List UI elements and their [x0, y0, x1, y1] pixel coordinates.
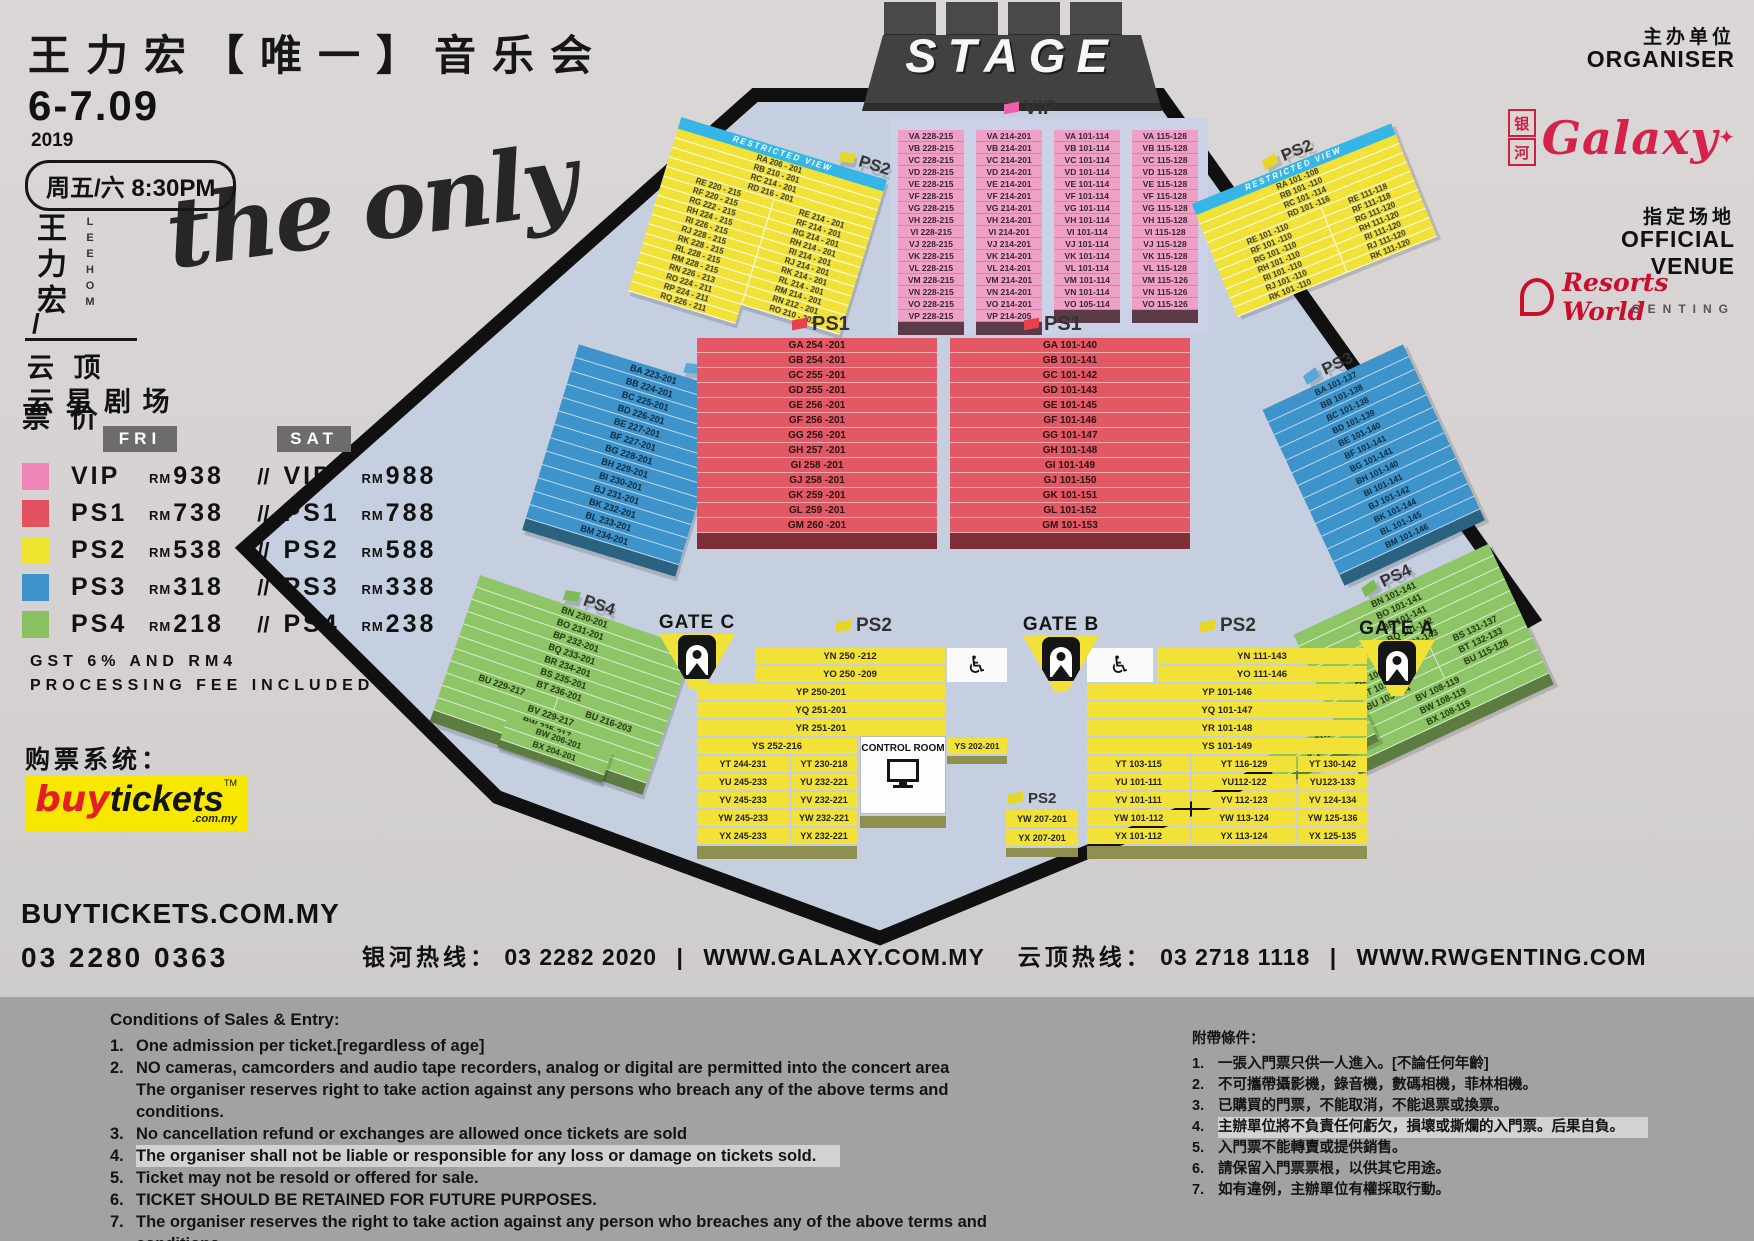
seat-row: VE 214-201	[976, 178, 1042, 190]
section-label-floating: PS1	[1024, 314, 1082, 334]
seat-cell: GB 254 -201	[697, 353, 937, 368]
seat-cell: VD 115-128	[1132, 166, 1198, 178]
seat-row: GL 101-152	[950, 503, 1190, 518]
seat-row: GG 256 -201	[697, 428, 937, 443]
seat-row: GJ 258 -201	[697, 473, 937, 488]
seat-row: GH 257 -201	[697, 443, 937, 458]
seat-cell: YT 103-115	[1087, 756, 1190, 772]
seat-cell: YS 202-201	[947, 738, 1007, 754]
seat-row: GI 101-149	[950, 458, 1190, 473]
seat-cell: VI 228-215	[898, 226, 964, 238]
condition-item: 1.One admission per ticket.[regardless o…	[110, 1035, 1010, 1057]
seat-row: VD 115-128	[1132, 166, 1198, 178]
seat-cell: YW 245-233	[697, 810, 789, 826]
seat-row: GB 254 -201	[697, 353, 937, 368]
seat-cell: VD 228-215	[898, 166, 964, 178]
seat-row: VB 101-114	[1054, 142, 1120, 154]
seat-row: GC 101-142	[950, 368, 1190, 383]
seat-cell: VF 101-114	[1054, 190, 1120, 202]
section-depth-strip	[1132, 310, 1198, 323]
seat-cell: YT 116-129	[1192, 756, 1296, 772]
seat-cell: YP 101-146	[1087, 684, 1367, 700]
seat-cell: VE 228-215	[898, 178, 964, 190]
condition-item: 6.TICKET SHOULD BE RETAINED FOR FUTURE P…	[110, 1189, 1010, 1211]
seat-row: VH 214-201	[976, 214, 1042, 226]
gate-door-icon	[1378, 641, 1416, 685]
gate-marker	[1023, 636, 1099, 692]
section-depth-strip	[898, 322, 964, 335]
gate: GATE B	[1016, 614, 1106, 692]
seat-cell: VN 214-201	[976, 286, 1042, 298]
seat-cell: VB 101-114	[1054, 142, 1120, 154]
section-label: PS2	[1008, 788, 1056, 808]
vip-col-3: VA 101-114VB 101-114VC 101-114VD 101-114…	[1054, 130, 1120, 323]
conditions-english: Conditions of Sales & Entry: 1.One admis…	[110, 1009, 1010, 1241]
seat-cell: VM 228-215	[898, 274, 964, 286]
gate-label: GATE B	[1016, 614, 1106, 636]
seat-cell: VC 214-201	[976, 154, 1042, 166]
section-label: PS2	[836, 616, 892, 636]
seat-cell: VG 115-128	[1132, 202, 1198, 214]
seat-cell: GE 101-145	[950, 398, 1190, 413]
gate-door-icon	[678, 635, 716, 679]
seat-cell: GL 101-152	[950, 503, 1190, 518]
seat-cell: VP 228-215	[898, 310, 964, 322]
seat-row: VK 115-128	[1132, 250, 1198, 262]
seat-row: VM 214-201	[976, 274, 1042, 286]
section-label-text: VIP	[1024, 97, 1056, 120]
seat-row: GE 101-145	[950, 398, 1190, 413]
seat-cell: VI 101-114	[1054, 226, 1120, 238]
seat-row: VI 214-201	[976, 226, 1042, 238]
seat-cell: GD 255 -201	[697, 383, 937, 398]
seat-cell: YX 245-233	[697, 828, 789, 844]
seat-cell: VK 228-215	[898, 250, 964, 262]
ps1-right: GA 101-140GB 101-141GC 101-142GD 101-143…	[950, 338, 1190, 549]
seat-cell: VN 228-215	[898, 286, 964, 298]
section-flag-icon	[838, 152, 856, 163]
seat-cell: GM 260 -201	[697, 518, 937, 533]
gate-arch-icon	[1050, 647, 1072, 677]
section-label: PS1	[1024, 314, 1082, 334]
seat-cell: VM 101-114	[1054, 274, 1120, 286]
seat-row: GF 256 -201	[697, 413, 937, 428]
seat-row: GA 254 -201	[697, 338, 937, 353]
seat-row: VC 101-114	[1054, 154, 1120, 166]
seat-row: VA 228-215	[898, 130, 964, 142]
seat-row: VF 101-114	[1054, 190, 1120, 202]
seat-cell: YT 130-142	[1298, 756, 1367, 772]
condition-item: 4.The organiser shall not be liable or r…	[110, 1145, 1010, 1167]
seat-row: VM 228-215	[898, 274, 964, 286]
seat-row: VO 228-215	[898, 298, 964, 310]
seat-cell: VO 115-126	[1132, 298, 1198, 310]
seat-cell: GK 259 -201	[697, 488, 937, 503]
seat-row: VI 101-114	[1054, 226, 1120, 238]
seat-cell: YN 111-143	[1157, 648, 1367, 664]
seat-cell: YN 250 -212	[755, 648, 945, 664]
section-flag-icon	[1362, 579, 1379, 597]
seat-row: VN 228-215	[898, 286, 964, 298]
section-flag-icon	[1008, 792, 1023, 805]
seat-cell: YT 244-231	[697, 756, 789, 772]
seat-cell: VG 101-114	[1054, 202, 1120, 214]
seat-row: VO 115-126	[1132, 298, 1198, 310]
condition-item: 7.The organiser reserves the right to ta…	[110, 1211, 1010, 1241]
seat-cell: YV 124-134	[1298, 792, 1367, 808]
seat-cell: VK 101-114	[1054, 250, 1120, 262]
seat-cell: GF 101-146	[950, 413, 1190, 428]
seat-row: VN 101-114	[1054, 286, 1120, 298]
seat-cell: YV 112-123	[1192, 792, 1296, 808]
seat-row: GB 101-141	[950, 353, 1190, 368]
seat-cell: VB 214-201	[976, 142, 1042, 154]
seat-cell: GL 259 -201	[697, 503, 937, 518]
gate-marker	[1359, 640, 1435, 696]
condition-item: 6.請保留入門票票根，以供其它用途。	[1192, 1159, 1732, 1180]
section-label: VIP	[1004, 98, 1056, 118]
seat-row: GD 101-143	[950, 383, 1190, 398]
seat-cell: VH 228-215	[898, 214, 964, 226]
section-depth-strip	[697, 846, 857, 859]
gate-arch-icon	[686, 645, 708, 675]
seat-cell: YX 125-135	[1298, 828, 1367, 844]
seat-row: VJ 228-215	[898, 238, 964, 250]
seat-cell: GA 101-140	[950, 338, 1190, 353]
seat-row: VD 101-114	[1054, 166, 1120, 178]
section-depth-strip	[860, 816, 946, 828]
seat-row: VI 115-128	[1132, 226, 1198, 238]
gate-arch-icon	[1386, 651, 1408, 681]
seat-cell: YU112-122	[1192, 774, 1296, 790]
section-label: PS2	[1200, 616, 1256, 636]
monitor-base	[893, 785, 913, 788]
seat-cell: GK 101-151	[950, 488, 1190, 503]
seat-cell: VK 115-128	[1132, 250, 1198, 262]
seat-cell: YW 232-221	[791, 810, 857, 826]
seat-row: VA 115-128	[1132, 130, 1198, 142]
section-label: PS1	[792, 314, 850, 334]
control-room-label: CONTROL ROOM	[861, 742, 945, 755]
ps2-restricted-left: PS2RESTRICTED VIEWRA 206 - 201RB 210 - 2…	[628, 98, 893, 354]
seat-cell: VF 214-201	[976, 190, 1042, 202]
conditions-band: Conditions of Sales & Entry: 1.One admis…	[0, 997, 1754, 1241]
seat-cell: VA 228-215	[898, 130, 964, 142]
section-label-floating: PS2	[1200, 616, 1256, 636]
seat-row: VG 115-128	[1132, 202, 1198, 214]
condition-item: 7.如有違例，主辦單位有權採取行動。	[1192, 1180, 1732, 1201]
seat-row: VE 101-114	[1054, 178, 1120, 190]
section-flag-icon	[836, 620, 851, 633]
seat-cell: VM 214-201	[976, 274, 1042, 286]
seat-row: GE 256 -201	[697, 398, 937, 413]
section-label-floating: VIP	[1004, 98, 1056, 118]
seat-row: VB 115-128	[1132, 142, 1198, 154]
seat-cell: VC 115-128	[1132, 154, 1198, 166]
seat-row: VC 214-201	[976, 154, 1042, 166]
seat-row: VK 228-215	[898, 250, 964, 262]
seat-cell: VD 214-201	[976, 166, 1042, 178]
section-label-floating: PS2	[1008, 788, 1056, 808]
seat-cell: YX 207-201	[1006, 829, 1078, 846]
seat-row: VB 214-201	[976, 142, 1042, 154]
seat-row: GL 259 -201	[697, 503, 937, 518]
vip-col-2: VA 214-201VB 214-201VC 214-201VD 214-201…	[976, 130, 1042, 335]
section-flag-icon	[1024, 318, 1039, 331]
seat-cell: GI 258 -201	[697, 458, 937, 473]
vip-col-4: VA 115-128VB 115-128VC 115-128VD 115-128…	[1132, 130, 1198, 323]
seat-cell: VL 115-128	[1132, 262, 1198, 274]
seat-cell: VE 214-201	[976, 178, 1042, 190]
seat-cell: VH 115-128	[1132, 214, 1198, 226]
seat-cell: YX 101-112	[1087, 828, 1190, 844]
seat-row: VD 214-201	[976, 166, 1042, 178]
seat-cell: YU 232-221	[791, 774, 857, 790]
section-label-text: PS1	[1044, 313, 1082, 336]
seat-row: VJ 101-114	[1054, 238, 1120, 250]
seat-cell: YO 250 -209	[755, 666, 945, 682]
gate-label: GATE A	[1352, 618, 1442, 640]
seat-cell: YR 251-201	[697, 720, 945, 736]
seat-cell: VL 101-114	[1054, 262, 1120, 274]
seat-cell: GG 256 -201	[697, 428, 937, 443]
section-flag-icon	[563, 590, 581, 602]
seat-cell: GF 256 -201	[697, 413, 937, 428]
seat-cell: GG 101-147	[950, 428, 1190, 443]
section-label-floating: PS1	[792, 314, 850, 334]
seat-cell: VO 105-114	[1054, 298, 1120, 310]
seat-cell: VA 214-201	[976, 130, 1042, 142]
section-label-text: PS2	[1028, 790, 1056, 807]
seat-row: GM 260 -201	[697, 518, 937, 533]
section-depth-strip	[1006, 848, 1078, 857]
seat-cell: GH 101-148	[950, 443, 1190, 458]
wheelchair-icon: ♿	[1109, 651, 1131, 680]
seat-row: VE 228-215	[898, 178, 964, 190]
seat-cell: YS 252-216	[697, 738, 857, 754]
seat-cell: YS 101-149	[1087, 738, 1367, 754]
seat-row: VD 228-215	[898, 166, 964, 178]
seat-cell: VI 115-128	[1132, 226, 1198, 238]
vip-col-1: VA 228-215VB 228-215VC 228-215VD 228-215…	[898, 130, 964, 335]
seat-row: GG 101-147	[950, 428, 1190, 443]
seat-cell: YV 245-233	[697, 792, 789, 808]
seat-cell: VN 115-126	[1132, 286, 1198, 298]
gate: GATE A	[1352, 618, 1442, 696]
seat-row: GM 101-153	[950, 518, 1190, 533]
seat-cell: GJ 101-150	[950, 473, 1190, 488]
seat-cell: YU123-133	[1298, 774, 1367, 790]
seat-row: VJ 115-128	[1132, 238, 1198, 250]
seat-row: VC 228-215	[898, 154, 964, 166]
seat-cell: VA 101-114	[1054, 130, 1120, 142]
seat-cell: GC 255 -201	[697, 368, 937, 383]
condition-item: 4.主辦單位將不負責任何虧欠，損壞或撕爛的入門票。后果自負。	[1192, 1117, 1732, 1138]
seat-cell: YR 101-148	[1087, 720, 1367, 736]
seat-cell: YQ 251-201	[697, 702, 945, 718]
seat-cell: YW 125-136	[1298, 810, 1367, 826]
condition-item: 2.不可攜帶攝影機，錄音機，數碼相機，菲林相機。	[1192, 1075, 1732, 1096]
seat-row: VL 115-128	[1132, 262, 1198, 274]
section-label-text: PS2	[856, 615, 892, 637]
seat-row: VK 214-201	[976, 250, 1042, 262]
seat-row: GK 259 -201	[697, 488, 937, 503]
seat-row: VF 228-215	[898, 190, 964, 202]
seat-cell: VH 214-201	[976, 214, 1042, 226]
seat-row: VL 101-114	[1054, 262, 1120, 274]
section-label-text: PS2	[1220, 615, 1256, 637]
gate-door-icon	[1042, 637, 1080, 681]
seat-row: GH 101-148	[950, 443, 1190, 458]
seat-cell: GB 101-141	[950, 353, 1190, 368]
seat-cell: VM 115-126	[1132, 274, 1198, 286]
seat-row: VA 101-114	[1054, 130, 1120, 142]
seat-cell: VK 214-201	[976, 250, 1042, 262]
seat-cell: VJ 115-128	[1132, 238, 1198, 250]
seat-row: GI 258 -201	[697, 458, 937, 473]
section-label-floating: PS2	[836, 616, 892, 636]
conditions-chinese: 附帶條件： 1.一張入門票只供一人進入。[不論任何年齡]2.不可攜帶攝影機，錄音…	[1192, 1029, 1732, 1201]
seat-row: GJ 101-150	[950, 473, 1190, 488]
section-flag-icon	[1303, 367, 1320, 385]
seat-cell: GH 257 -201	[697, 443, 937, 458]
seat-cell: YQ 101-147	[1087, 702, 1367, 718]
seat-cell: VI 214-201	[976, 226, 1042, 238]
seat-row: VO 214-201	[976, 298, 1042, 310]
seat-cell: VL 228-215	[898, 262, 964, 274]
section-depth-strip	[947, 756, 1007, 764]
gate-marker	[659, 634, 735, 690]
seat-cell: VD 101-114	[1054, 166, 1120, 178]
seat-row: VG 214-201	[976, 202, 1042, 214]
seat-row: VG 101-114	[1054, 202, 1120, 214]
section-flag-icon	[1004, 102, 1019, 115]
seat-row: GA 101-140	[950, 338, 1190, 353]
seat-row: VB 228-215	[898, 142, 964, 154]
seat-row: VH 228-215	[898, 214, 964, 226]
seat-row: VF 214-201	[976, 190, 1042, 202]
seat-cell: YU 101-111	[1087, 774, 1190, 790]
seat-cell: VJ 101-114	[1054, 238, 1120, 250]
seat-cell: VF 228-215	[898, 190, 964, 202]
seat-row: VN 115-126	[1132, 286, 1198, 298]
seat-cell: VG 214-201	[976, 202, 1042, 214]
seat-cell: YW 101-112	[1087, 810, 1190, 826]
section-depth-strip	[697, 533, 937, 549]
seat-cell: VC 101-114	[1054, 154, 1120, 166]
seat-row: GF 101-146	[950, 413, 1190, 428]
seat-cell: GJ 258 -201	[697, 473, 937, 488]
seat-cell: VG 228-215	[898, 202, 964, 214]
seat-row: VH 115-128	[1132, 214, 1198, 226]
seat-cell: VB 228-215	[898, 142, 964, 154]
wheelchair-zone: ♿	[947, 648, 1007, 682]
seat-cell: VO 228-215	[898, 298, 964, 310]
control-room: CONTROL ROOM	[860, 736, 946, 814]
seat-row: GK 101-151	[950, 488, 1190, 503]
condition-item: 2.NO cameras, camcorders and audio tape …	[110, 1057, 1010, 1079]
condition-item: 5.入門票不能轉賣或提供銷售。	[1192, 1138, 1732, 1159]
seat-cell: VO 214-201	[976, 298, 1042, 310]
seat-cell: VA 115-128	[1132, 130, 1198, 142]
section-label-text: PS1	[812, 313, 850, 336]
section-depth-strip	[950, 533, 1190, 549]
ps1-left: GA 254 -201GB 254 -201GC 255 -201GD 255 …	[697, 338, 937, 549]
seat-cell: GM 101-153	[950, 518, 1190, 533]
section-flag-icon	[1200, 620, 1215, 633]
seat-row: VH 101-114	[1054, 214, 1120, 226]
gate: GATE C	[652, 612, 742, 690]
seat-cell: YW 207-201	[1006, 810, 1078, 827]
condition-item: 1.一張入門票只供一人進入。[不論任何年齡]	[1192, 1054, 1732, 1075]
section-flag-icon	[1262, 153, 1279, 170]
seat-cell: YU 245-233	[697, 774, 789, 790]
seat-cell: YO 111-146	[1157, 666, 1367, 682]
seat-row: VC 115-128	[1132, 154, 1198, 166]
seat-cell: YW 113-124	[1192, 810, 1296, 826]
seat-cell: VH 101-114	[1054, 214, 1120, 226]
seat-row: VL 228-215	[898, 262, 964, 274]
seat-row: VM 101-114	[1054, 274, 1120, 286]
seat-cell: YT 230-218	[791, 756, 857, 772]
condition-item: 5.Ticket may not be resold or offered fo…	[110, 1167, 1010, 1189]
seat-row: GD 255 -201	[697, 383, 937, 398]
seat-cell: YX 232-221	[791, 828, 857, 844]
section-flag-icon	[792, 318, 807, 331]
seat-cell: GI 101-149	[950, 458, 1190, 473]
seat-cell: VC 228-215	[898, 154, 964, 166]
condition-item: 3.No cancellation refund or exchanges ar…	[110, 1123, 1010, 1145]
seat-row: VA 214-201	[976, 130, 1042, 142]
seat-row: GC 255 -201	[697, 368, 937, 383]
seat-cell: VN 101-114	[1054, 286, 1120, 298]
seat-row: VJ 214-201	[976, 238, 1042, 250]
seat-cell: GD 101-143	[950, 383, 1190, 398]
seat-row: VM 115-126	[1132, 274, 1198, 286]
seat-row: VN 214-201	[976, 286, 1042, 298]
condition-item-cont: The organiser reserves right to take act…	[110, 1079, 1010, 1123]
seat-row: VI 228-215	[898, 226, 964, 238]
seat-cell: VJ 214-201	[976, 238, 1042, 250]
seat-cell: GE 256 -201	[697, 398, 937, 413]
seat-cell: VL 214-201	[976, 262, 1042, 274]
condition-item: 3.已購買的門票，不能取消，不能退票或換票。	[1192, 1096, 1732, 1117]
seat-row: VK 101-114	[1054, 250, 1120, 262]
seat-cell: YV 101-111	[1087, 792, 1190, 808]
seat-row: VL 214-201	[976, 262, 1042, 274]
wheelchair-icon: ♿	[966, 651, 988, 680]
seat-cell: GC 101-142	[950, 368, 1190, 383]
ps2-restricted-right: PS2RESTRICTED VIEWRA 101 -108RB 101 -110…	[1184, 105, 1437, 317]
seat-cell: VB 115-128	[1132, 142, 1198, 154]
seat-row: VO 105-114	[1054, 298, 1120, 310]
concert-poster: STAGE 王力宏【唯一】音乐会 6-7.09 2019 周五/六 8:30PM…	[0, 0, 1754, 1241]
gate-label: GATE C	[652, 612, 742, 634]
seat-cell: YV 232-221	[791, 792, 857, 808]
seat-cell: GA 254 -201	[697, 338, 937, 353]
seat-row: VP 228-215	[898, 310, 964, 322]
section-depth-strip	[1087, 846, 1367, 859]
seat-cell: VE 101-114	[1054, 178, 1120, 190]
monitor-icon	[887, 759, 919, 782]
seat-cell: VJ 228-215	[898, 238, 964, 250]
seat-cell: YX 113-124	[1192, 828, 1296, 844]
seat-row: VG 228-215	[898, 202, 964, 214]
